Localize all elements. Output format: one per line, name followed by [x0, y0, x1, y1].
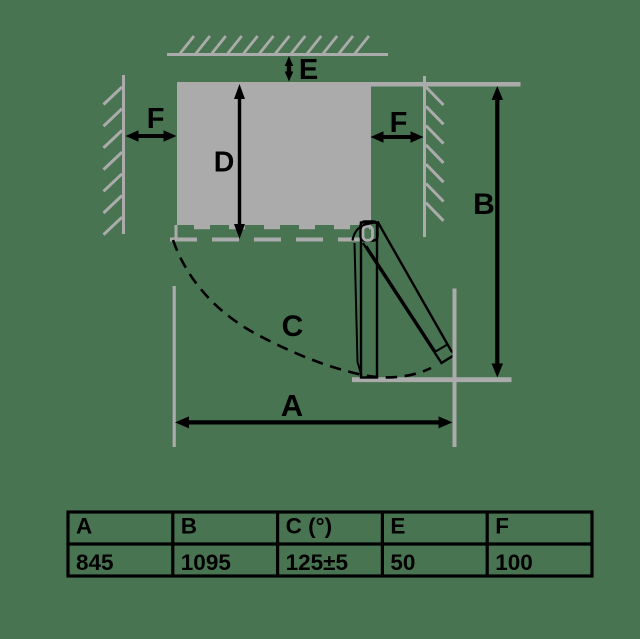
svg-text:A: A [76, 514, 92, 539]
svg-text:C: C [282, 310, 304, 343]
svg-text:F: F [495, 514, 509, 539]
svg-text:125±5: 125±5 [286, 550, 348, 575]
svg-text:E: E [299, 54, 318, 86]
svg-text:845: 845 [76, 550, 114, 575]
svg-text:E: E [390, 514, 405, 539]
svg-text:A: A [281, 388, 303, 423]
svg-text:1095: 1095 [181, 550, 231, 575]
svg-text:D: D [214, 147, 235, 179]
svg-text:C (°): C (°) [286, 514, 332, 539]
svg-text:F: F [390, 107, 408, 139]
svg-text:F: F [147, 103, 165, 135]
svg-text:B: B [181, 514, 197, 539]
svg-text:50: 50 [390, 550, 415, 575]
svg-text:100: 100 [495, 550, 533, 575]
svg-text:B: B [473, 188, 495, 221]
